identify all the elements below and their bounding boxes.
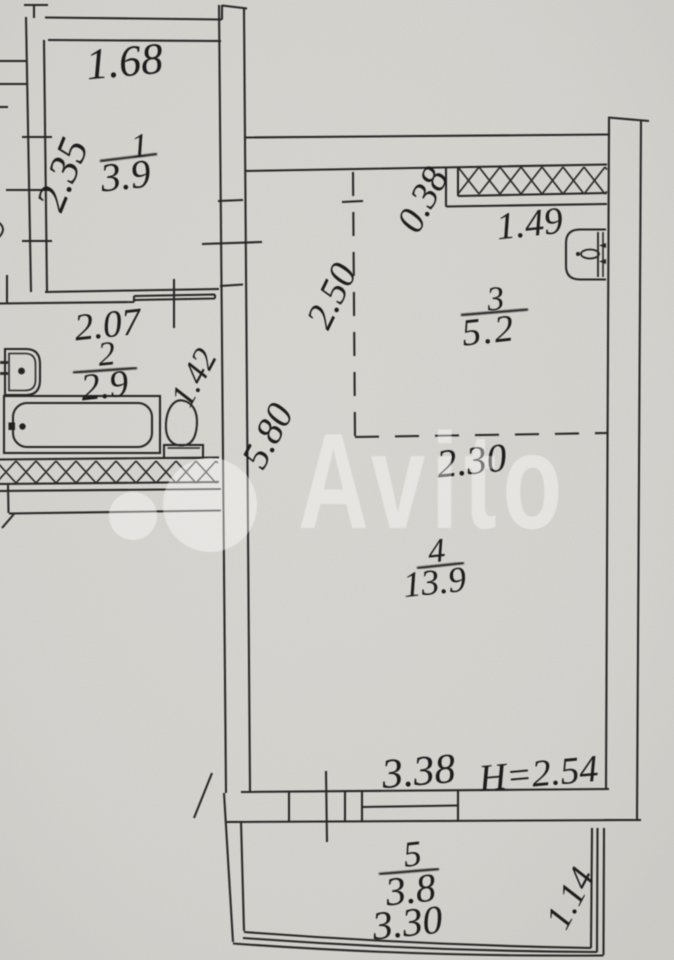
svg-text:13.9: 13.9: [401, 559, 468, 605]
svg-text:5.2: 5.2: [460, 307, 518, 354]
svg-text:3.9: 3.9: [97, 150, 152, 200]
svg-text:Avito: Avito: [298, 406, 568, 557]
svg-text:3.38: 3.38: [379, 746, 457, 798]
svg-text:1.49: 1.49: [494, 200, 565, 249]
svg-text:1.68: 1.68: [84, 34, 165, 90]
svg-text:2.9: 2.9: [79, 363, 131, 410]
svg-text:3.30: 3.30: [369, 896, 444, 948]
